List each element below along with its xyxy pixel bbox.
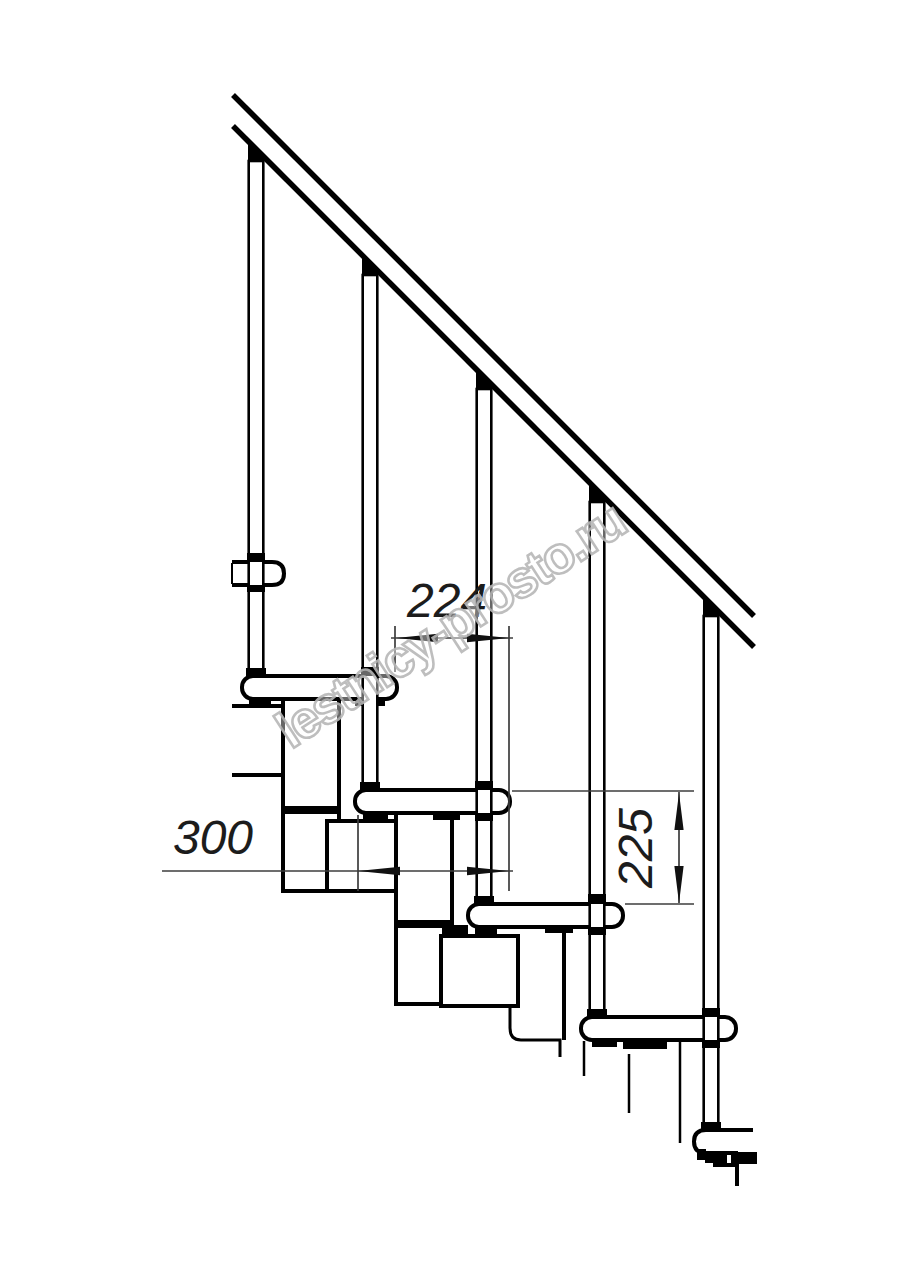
module-box-vertical-4-lower-outline: [510, 1006, 560, 1057]
tread-clamp: [363, 811, 388, 820]
watermark-text: lestnicy-prosto.ru: [265, 491, 635, 759]
tread-clamp: [545, 925, 573, 933]
baluster-collar-below: [702, 1040, 720, 1048]
module-box-square-2: [327, 821, 404, 891]
baluster-foot: [360, 782, 380, 790]
baluster-1: [249, 161, 264, 676]
baluster-collar-below: [247, 585, 265, 592]
dimension-label-depth: 300: [173, 811, 253, 864]
tread-clamp: [705, 1152, 727, 1163]
baluster-collar-above: [588, 894, 606, 904]
staircase-side-view-drawing: 224 300 225 lestnicy-prosto.ru: [0, 0, 914, 1280]
baluster-collar-below: [588, 927, 606, 935]
arrow-up: [674, 793, 683, 830]
dimension-label-rise: 225: [609, 808, 662, 889]
baluster-foot: [587, 1009, 607, 1017]
module-joint: [283, 806, 339, 814]
baluster-foot: [474, 896, 494, 904]
module-box-square-3: [441, 936, 518, 1006]
tread-clamp: [475, 925, 497, 934]
tread-clamp: [249, 697, 271, 706]
tread-clamp: [623, 1038, 667, 1049]
baluster-5: [704, 616, 719, 1130]
handrail-upper-line: [233, 95, 754, 616]
arrow-down: [674, 866, 683, 903]
baluster-collar-above: [702, 1008, 720, 1017]
tread-clamp: [731, 1152, 757, 1164]
baluster-3: [477, 389, 492, 904]
staircase-drawing-page: 224 300 225 lestnicy-prosto.ru: [0, 0, 914, 1280]
baluster-4: [590, 502, 605, 1017]
tread-clamp: [433, 811, 460, 820]
tread-clamp: [592, 1038, 617, 1047]
baluster-collar-above: [475, 781, 493, 790]
tread-clamp: [442, 925, 468, 936]
baluster-foot: [246, 668, 266, 676]
baluster-collar-below: [475, 813, 493, 821]
baluster-foot: [701, 1122, 721, 1130]
baluster-collar-above: [247, 553, 265, 562]
tread-clamp: [697, 1149, 706, 1160]
module-box-vertical-6-outline: [713, 1165, 737, 1186]
